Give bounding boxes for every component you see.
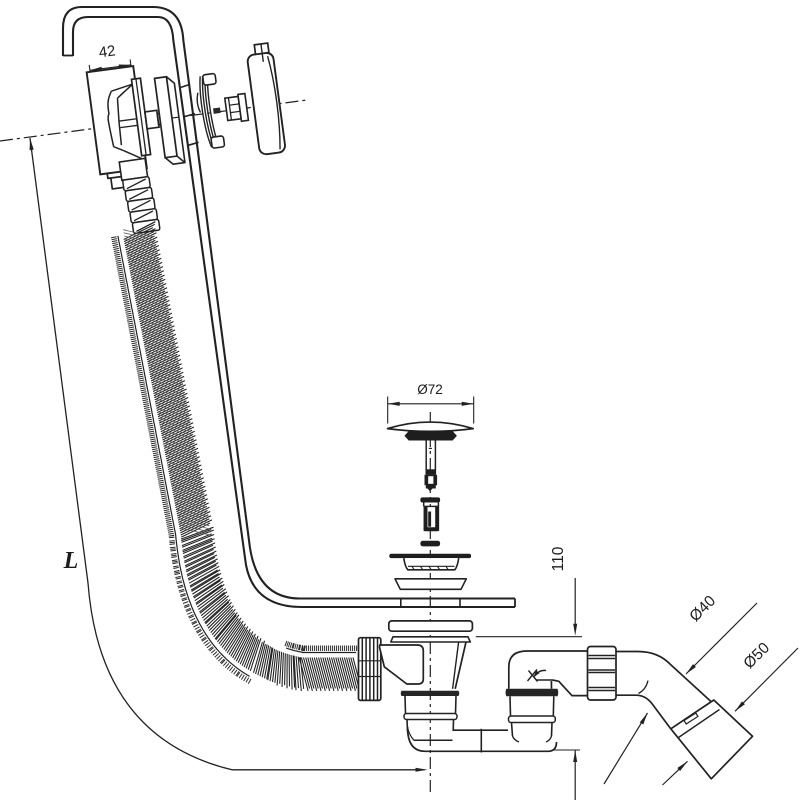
svg-text:Ø72: Ø72 xyxy=(417,382,443,397)
svg-text:42: 42 xyxy=(98,42,117,61)
svg-text:L: L xyxy=(63,548,79,574)
svg-text:110: 110 xyxy=(550,546,567,571)
